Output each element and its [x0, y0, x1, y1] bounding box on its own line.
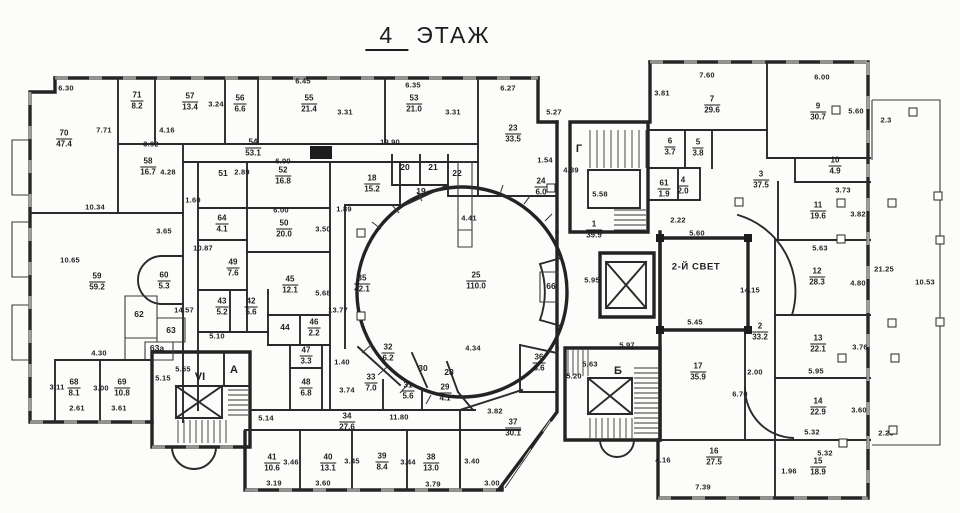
dimension-label: 5.27 [546, 108, 561, 117]
room-number-label: 63 [166, 325, 175, 335]
room-number-label: 20 [400, 162, 409, 172]
room-label: 462.2 [308, 319, 321, 338]
dimension-label: 10.34 [85, 203, 105, 212]
dimension-label: 5.60 [848, 107, 863, 116]
dimension-label: 5.14 [258, 414, 273, 423]
dimension-label: 3.82 [487, 407, 502, 416]
column-marker [888, 319, 897, 328]
room-label: 473.3 [300, 347, 313, 366]
room-number-label: 44 [280, 322, 289, 332]
room-label: 6910.8 [114, 379, 130, 398]
dimension-label: 2.3 [880, 116, 891, 125]
room-label: 1627.5 [706, 448, 722, 467]
room-label: 1518.9 [810, 458, 826, 477]
dimension-label: 7.39 [695, 483, 710, 492]
dimension-label: 10.87 [193, 244, 213, 253]
dimension-label: 3.46 [283, 458, 298, 467]
dimension-label: 3.82 [850, 210, 865, 219]
dimension-label: 3.60 [851, 406, 866, 415]
room-label: 5453.1 [245, 139, 261, 158]
dimension-label: 5.32 [804, 428, 819, 437]
dimension-label: 6.45 [295, 77, 310, 86]
room-label: 611.9 [658, 180, 671, 199]
dimension-label: 3.31 [337, 108, 352, 117]
room-label: 294.1 [439, 384, 452, 403]
room-label: 1228.3 [809, 268, 825, 287]
dimension-label: 1.89 [336, 205, 351, 214]
dimension-label: 3.00 [484, 479, 499, 488]
dimension-label: 5.55 [175, 365, 190, 374]
dimension-label: 3.79 [425, 480, 440, 489]
column-marker [888, 199, 897, 208]
dimension-label: 2.89 [234, 168, 249, 177]
dimension-label: 7.60 [699, 71, 714, 80]
room-label: 63.7 [664, 138, 675, 157]
zone-label: Г [576, 143, 582, 155]
room-label: 605.3 [158, 272, 171, 291]
dimension-label: 3.19 [266, 479, 281, 488]
column-marker [839, 439, 848, 448]
room-number-label: 21 [428, 162, 437, 172]
dimension-label: 5.60 [689, 229, 704, 238]
room-label: 42.0 [677, 177, 688, 196]
room-label: 5959.2 [89, 273, 105, 292]
dimension-label: 6.70 [732, 390, 747, 399]
dimension-label: 1.54 [537, 156, 552, 165]
dimension-label: 5.10 [209, 332, 224, 341]
dimension-label: 19.90 [380, 138, 400, 147]
dimension-label: 4.41 [461, 214, 476, 223]
column-marker [832, 106, 841, 115]
room-label: 337.0 [365, 374, 378, 393]
dimension-label: 14.15 [740, 286, 760, 295]
room-label: 5521.4 [301, 95, 317, 114]
dimension-label: 11.80 [389, 413, 408, 422]
dimension-label: 6.00 [814, 73, 829, 82]
column-marker [547, 184, 556, 193]
room-label: 566.6 [234, 95, 247, 114]
room-label: 486.8 [300, 379, 313, 398]
dimension-label: 3.74 [339, 386, 354, 395]
column-marker [837, 199, 846, 208]
dimension-label: 5.15 [155, 374, 170, 383]
dimension-label: 6.30 [58, 84, 73, 93]
room-label: 1815.2 [364, 175, 380, 194]
column-marker [909, 108, 918, 117]
dimension-label: 4.16 [159, 126, 174, 135]
dimension-label: 3.00 [93, 384, 108, 393]
dimension-label: 2.22 [670, 216, 685, 225]
room-label: 233.2 [752, 323, 768, 342]
room-label: 1322.1 [810, 335, 826, 354]
dimension-label: 5.97 [619, 341, 634, 350]
room-label: 3427.6 [339, 413, 355, 432]
room-label: 3813.0 [423, 454, 439, 473]
room-label: 398.4 [376, 453, 389, 472]
dimension-label: 2.00 [747, 368, 762, 377]
dimension-label: 3.31 [445, 108, 460, 117]
dimension-label: 3.73 [835, 186, 850, 195]
room-label: 53.8 [692, 139, 703, 158]
zone-label: Б [614, 365, 622, 377]
dimension-label: 10.65 [60, 256, 80, 265]
room-label: 5216.8 [275, 167, 291, 186]
dimension-label: 3.24 [208, 100, 223, 109]
dimension-label: 5.95 [808, 367, 823, 376]
column-marker [936, 236, 945, 245]
room-label: 366.6 [533, 354, 546, 373]
dimension-label: 5.45 [687, 318, 702, 327]
room-label: 3730.1 [505, 419, 521, 438]
room-label: 4512.1 [282, 276, 298, 295]
room-number-label: 30 [418, 363, 427, 373]
room-label: 644.1 [216, 215, 229, 234]
room-label: 5816.7 [140, 158, 156, 177]
dimension-label: 5.32 [817, 449, 832, 458]
dimension-label: 3.81 [654, 89, 669, 98]
room-number-label: 28 [444, 367, 453, 377]
room-label: 688.1 [68, 379, 81, 398]
dimension-label: 4.30 [91, 349, 106, 358]
room-label: 4013.1 [320, 454, 336, 473]
dimension-label: 5.63 [812, 244, 827, 253]
dimension-label: 6.35 [405, 81, 420, 90]
dimension-label: 1.40 [334, 358, 349, 367]
dimension-label: 10.53 [915, 278, 935, 287]
room-label: 497.6 [227, 259, 240, 278]
room-label: 4110.6 [264, 454, 280, 473]
column-marker [889, 426, 898, 435]
dimension-label: 1.60 [185, 196, 200, 205]
dimension-label: 3.45 [344, 457, 359, 466]
dimension-label: 3.44 [400, 458, 415, 467]
dimension-label: 3.40 [464, 457, 479, 466]
dimension-label: 7.71 [96, 126, 111, 135]
room-label: 1422.9 [810, 398, 826, 417]
dimension-label: 4.28 [160, 168, 175, 177]
column-marker [735, 198, 744, 207]
zone-label: А [230, 364, 238, 376]
dimension-label: 4.39 [563, 166, 578, 175]
room-label: 315.6 [402, 382, 415, 401]
room-label: 3542.1 [354, 275, 370, 294]
room-label: 326.2 [382, 344, 395, 363]
dimension-label: 13.77 [328, 306, 348, 315]
column-marker [936, 318, 945, 327]
room-number-label: 63а [150, 343, 164, 353]
room-label: 104.9 [829, 157, 842, 176]
dimension-label: 6.00 [273, 206, 288, 215]
column-marker [838, 354, 847, 363]
dimension-label: 4.80 [850, 279, 865, 288]
zone-label: 2-Й СВЕТ [672, 262, 721, 273]
room-label: 139.9 [586, 221, 602, 240]
room-number-label: 62 [134, 309, 143, 319]
dimension-label: 5.68 [315, 289, 330, 298]
room-label: 25110.0 [466, 272, 486, 291]
room-number-label: 51 [218, 168, 227, 178]
room-label: 435.2 [216, 298, 229, 317]
room-label: 1119.6 [810, 202, 826, 221]
room-label: 5321.0 [406, 95, 422, 114]
room-label: 425.6 [245, 298, 258, 317]
column-marker [837, 235, 846, 244]
room-label: 718.2 [131, 92, 144, 111]
dimension-label: 3.65 [156, 227, 171, 236]
floorplan-page: 4ЭТАЖ [0, 0, 960, 513]
room-label: 2333.5 [505, 125, 521, 144]
room-label: 337.5 [753, 171, 769, 190]
dimension-label: 3.11 [50, 383, 65, 392]
dimension-label: 3.76 [852, 343, 867, 352]
dimension-label: 6.00 [275, 157, 290, 166]
dimension-label: 5.58 [592, 190, 607, 199]
dimension-label: 4.16 [655, 456, 670, 465]
column-marker [357, 229, 366, 238]
room-label: 5713.4 [182, 93, 198, 112]
dimension-label: 6.27 [500, 84, 515, 93]
dimension-label: 3.60 [315, 479, 330, 488]
dimension-label: 3.50 [315, 225, 330, 234]
room-label: 5020.0 [276, 220, 292, 239]
dimension-label: 3.61 [111, 404, 126, 413]
dimension-label: 5.95 [584, 276, 599, 285]
room-label: 1735.9 [690, 363, 706, 382]
dimension-label: 2.61 [69, 404, 84, 413]
labels-layer: 7047.4718.25713.4566.65521.45321.02333.5… [0, 0, 960, 513]
room-number-label: 66 [546, 281, 555, 291]
dimension-label: 21.25 [874, 265, 894, 274]
column-marker [891, 354, 900, 363]
dimension-label: 4.34 [465, 344, 480, 353]
column-marker [357, 312, 366, 321]
room-number-label: 19 [416, 186, 425, 196]
room-label: 7047.4 [56, 130, 72, 149]
room-label: 930.7 [810, 103, 826, 122]
dimension-label: 1.96 [781, 467, 796, 476]
dimension-label: 5.63 [582, 360, 597, 369]
dimension-label: 14.57 [174, 306, 194, 315]
zone-label: VI [195, 371, 205, 383]
room-number-label: 22 [452, 168, 461, 178]
room-label: 729.6 [704, 96, 720, 115]
dimension-label: 5.20 [566, 372, 581, 381]
column-marker [934, 192, 943, 201]
dimension-label: 3.92 [143, 140, 158, 149]
